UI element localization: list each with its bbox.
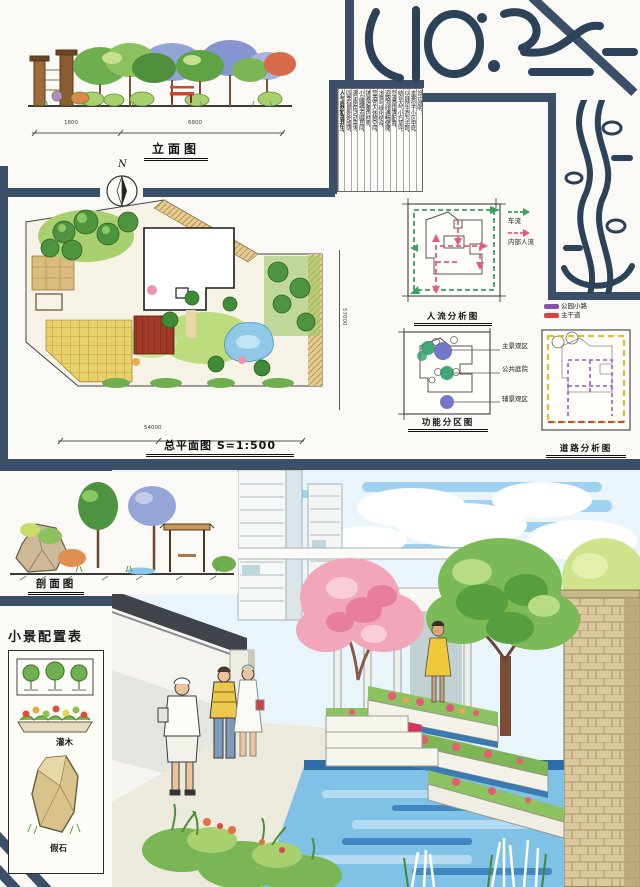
presentation-board: 1800 6800 立面图 N <box>0 0 640 887</box>
pink-dashed-arrow-icon <box>508 229 530 237</box>
plan-dim-right-line: 57000 <box>339 250 350 410</box>
main-road-swatch <box>544 313 559 318</box>
elevation-dim-line: 1800 6800 <box>30 124 286 136</box>
circulation-legend: 车流 内部人流 <box>508 208 544 246</box>
frame-line <box>548 93 556 300</box>
elevation-title: 立面图 <box>144 140 208 161</box>
elevation-dim-right: 6800 <box>188 120 202 126</box>
white-beam <box>230 548 475 559</box>
bench <box>170 86 194 103</box>
master-plan-drawing <box>16 192 336 434</box>
elevation-dim-left: 1800 <box>64 120 78 126</box>
circulation-diagram <box>402 198 506 306</box>
function-diagram-title: 功能分区图 <box>408 416 488 432</box>
config-stone-sketch <box>20 752 86 838</box>
circulation-legend-label: 车流 <box>508 218 544 225</box>
green-dashed-arrow-icon <box>508 208 530 216</box>
road-diagram <box>536 326 636 440</box>
design-notes-column: 设计说明： <box>416 89 422 191</box>
compass-north-label: N <box>118 159 127 170</box>
entry-walk <box>186 310 196 338</box>
abstract-sketch-panel <box>354 0 640 92</box>
config-item-label: 灌木 <box>56 736 73 748</box>
frame-line <box>329 84 337 194</box>
function-diagram <box>398 328 500 420</box>
road-legend-label: 主干道 <box>561 312 581 319</box>
config-shrub-planter-sketch <box>12 700 96 736</box>
function-callout: 公共庭院 <box>502 366 536 373</box>
curvy-sketch-panel <box>556 100 640 294</box>
frame-line <box>345 0 354 100</box>
master-plan-title: 总平面图 S=1:500 <box>146 437 294 457</box>
park-path-swatch <box>544 304 559 309</box>
road-diagram-title: 道路分析图 <box>546 442 626 458</box>
plan-dim-bottom: 54000 <box>144 425 162 431</box>
frame-line <box>0 166 8 468</box>
paving <box>46 320 132 382</box>
function-callout: 主景观区 <box>502 343 536 350</box>
config-table-title: 小景配置表 <box>8 626 83 645</box>
circulation-diagram-title: 人流分析图 <box>414 310 492 326</box>
terrace <box>32 256 74 290</box>
config-plants-sketch <box>16 658 94 696</box>
section-title: 剖面图 <box>28 576 84 595</box>
elevation-shrubs <box>52 91 282 106</box>
function-callout: 辅景观区 <box>502 396 536 403</box>
elevation-drawing <box>22 36 298 122</box>
road-legend: 公园小路 主干道 <box>544 303 614 321</box>
road-legend-label: 公园小路 <box>561 303 587 310</box>
design-notes: 设计说明： 本案位于小区中庭， 以自然生态为主题， 结合大气小巧草坪， 乔灌草错… <box>337 88 423 192</box>
config-item-label: 假石 <box>50 842 67 854</box>
circulation-legend-label: 内部人流 <box>508 239 534 246</box>
plan-dim-right: 57000 <box>341 308 347 326</box>
